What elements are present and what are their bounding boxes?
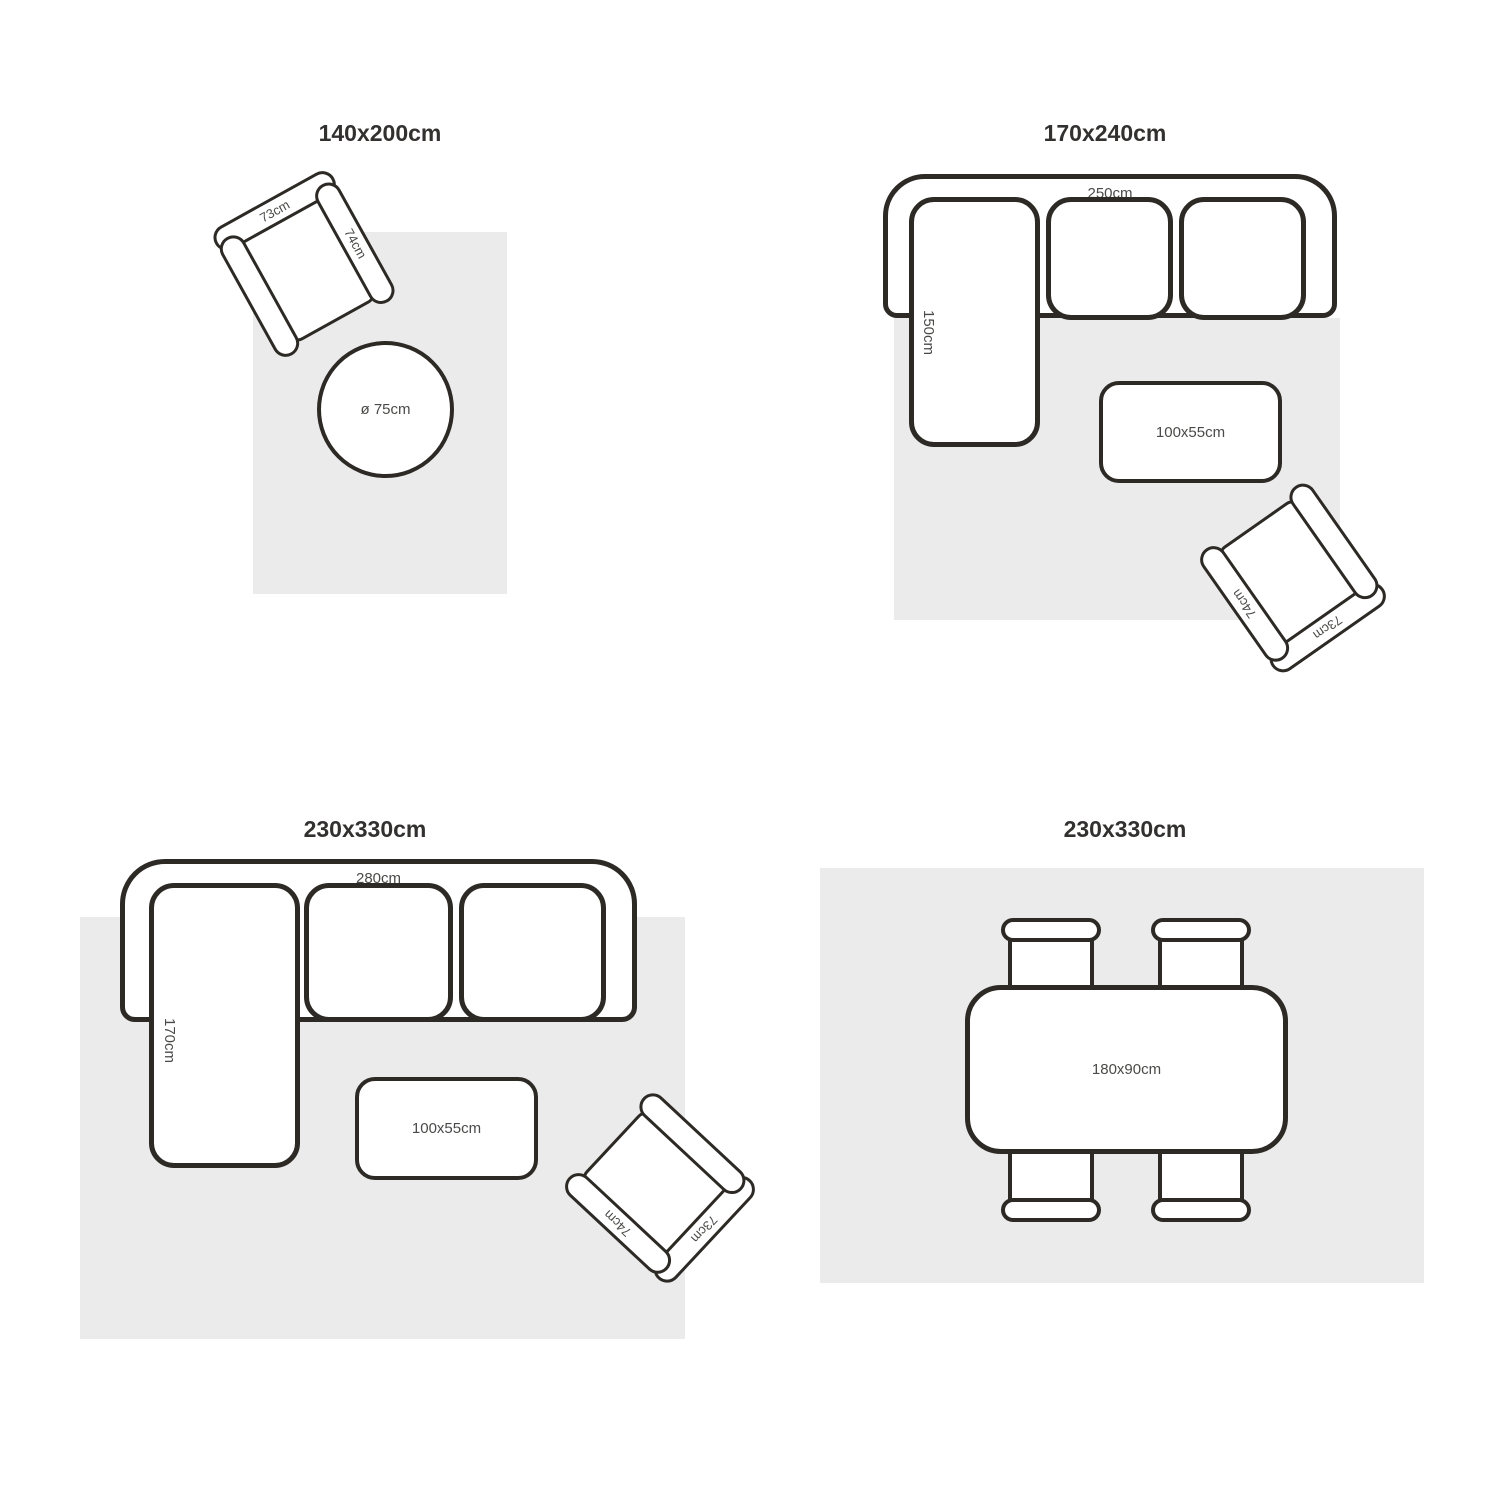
- sofa-chaise-depth-label: 150cm: [920, 310, 937, 355]
- dining-chair-backrest: [1151, 918, 1251, 942]
- round-table-diameter-label: ø 75cm: [360, 401, 410, 418]
- rug-size-title-q3: 230x330cm: [304, 816, 427, 843]
- rug-size-title-q1: 140x200cm: [319, 120, 442, 147]
- sofa-chaise: 150cm: [909, 197, 1040, 447]
- dining-chair-backrest: [1001, 1198, 1101, 1222]
- dining-chair-backrest: [1151, 1198, 1251, 1222]
- rug-size-guide-diagram: 140x200cm 73cm 74cm ø 75cm 170x240cm 250…: [0, 0, 1500, 1500]
- coffee-table: 100x55cm: [355, 1077, 538, 1180]
- sofa-chaise-depth-label: 170cm: [161, 1018, 178, 1063]
- sofa-seat-cushion: [304, 883, 453, 1022]
- sofa-chaise: 170cm: [149, 883, 300, 1168]
- dining-table: 180x90cm: [965, 985, 1288, 1154]
- sofa-seat-cushion: [459, 883, 606, 1022]
- dining-table-size-label: 180x90cm: [1092, 1061, 1161, 1078]
- coffee-table: 100x55cm: [1099, 381, 1282, 483]
- dining-chair-backrest: [1001, 918, 1101, 942]
- rug-size-title-q2: 170x240cm: [1044, 120, 1167, 147]
- sofa-seat-cushion: [1046, 197, 1173, 320]
- sofa-seat-cushion: [1179, 197, 1306, 320]
- coffee-table-size-label: 100x55cm: [412, 1120, 481, 1137]
- round-side-table: ø 75cm: [317, 341, 454, 478]
- coffee-table-size-label: 100x55cm: [1156, 424, 1225, 441]
- rug-size-title-q4: 230x330cm: [1064, 816, 1187, 843]
